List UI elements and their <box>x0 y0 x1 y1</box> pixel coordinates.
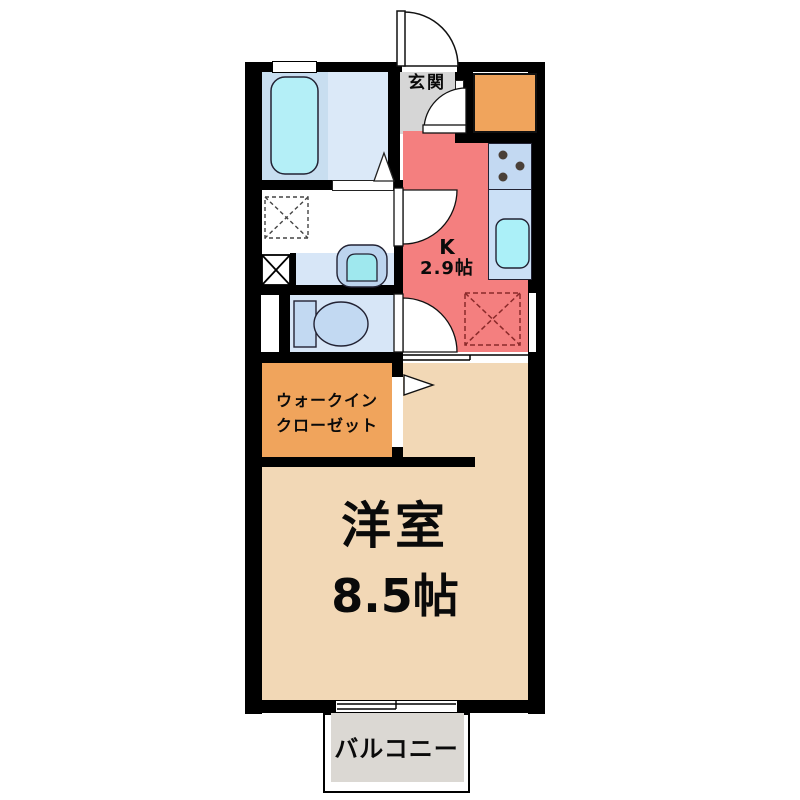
balcony-label: バルコニー <box>323 736 470 764</box>
closet-door-icon <box>404 375 433 395</box>
bathtub <box>271 77 318 174</box>
kitchen-label-line2: 2.9帖 <box>401 259 493 280</box>
floorplan-canvas: 玄関 K 2.9帖 ウォークイン クローゼット 洋室 8.5帖 バルコニー <box>0 0 800 800</box>
sliding-door-symbol <box>403 355 528 360</box>
toilet-door-leaf <box>394 294 403 352</box>
room-label-line1: 洋室 <box>262 498 528 556</box>
kitchen-stove-burners <box>499 151 525 182</box>
pipe-space <box>262 255 290 285</box>
washbasin-bowl <box>347 254 377 281</box>
bath-folding-door-icon <box>374 153 394 181</box>
room-label-line2: 8.5帖 <box>262 570 528 623</box>
toilet-bowl <box>314 302 368 346</box>
kitchen-label: K 2.9帖 <box>401 236 493 280</box>
entrance-door-leaf <box>397 11 405 66</box>
washing-machine-pan <box>265 197 308 238</box>
entrance-door-swing <box>404 12 458 66</box>
hall-door-swing <box>424 88 466 130</box>
fixtures-layer <box>0 0 800 800</box>
toilet-tank <box>294 301 316 347</box>
hall-door-leaf <box>423 125 466 133</box>
refrigerator-space <box>465 293 520 345</box>
closet-label-line1: ウォークイン <box>260 389 394 414</box>
balcony-window-symbol <box>337 701 456 709</box>
kitchen-label-line1: K <box>401 236 493 259</box>
toilet-door-swing <box>403 298 457 352</box>
kitchen-sink <box>496 219 529 268</box>
entrance-label: 玄関 <box>396 74 458 94</box>
closet-label: ウォークイン クローゼット <box>260 389 394 439</box>
closet-label-line2: クローゼット <box>260 414 394 439</box>
